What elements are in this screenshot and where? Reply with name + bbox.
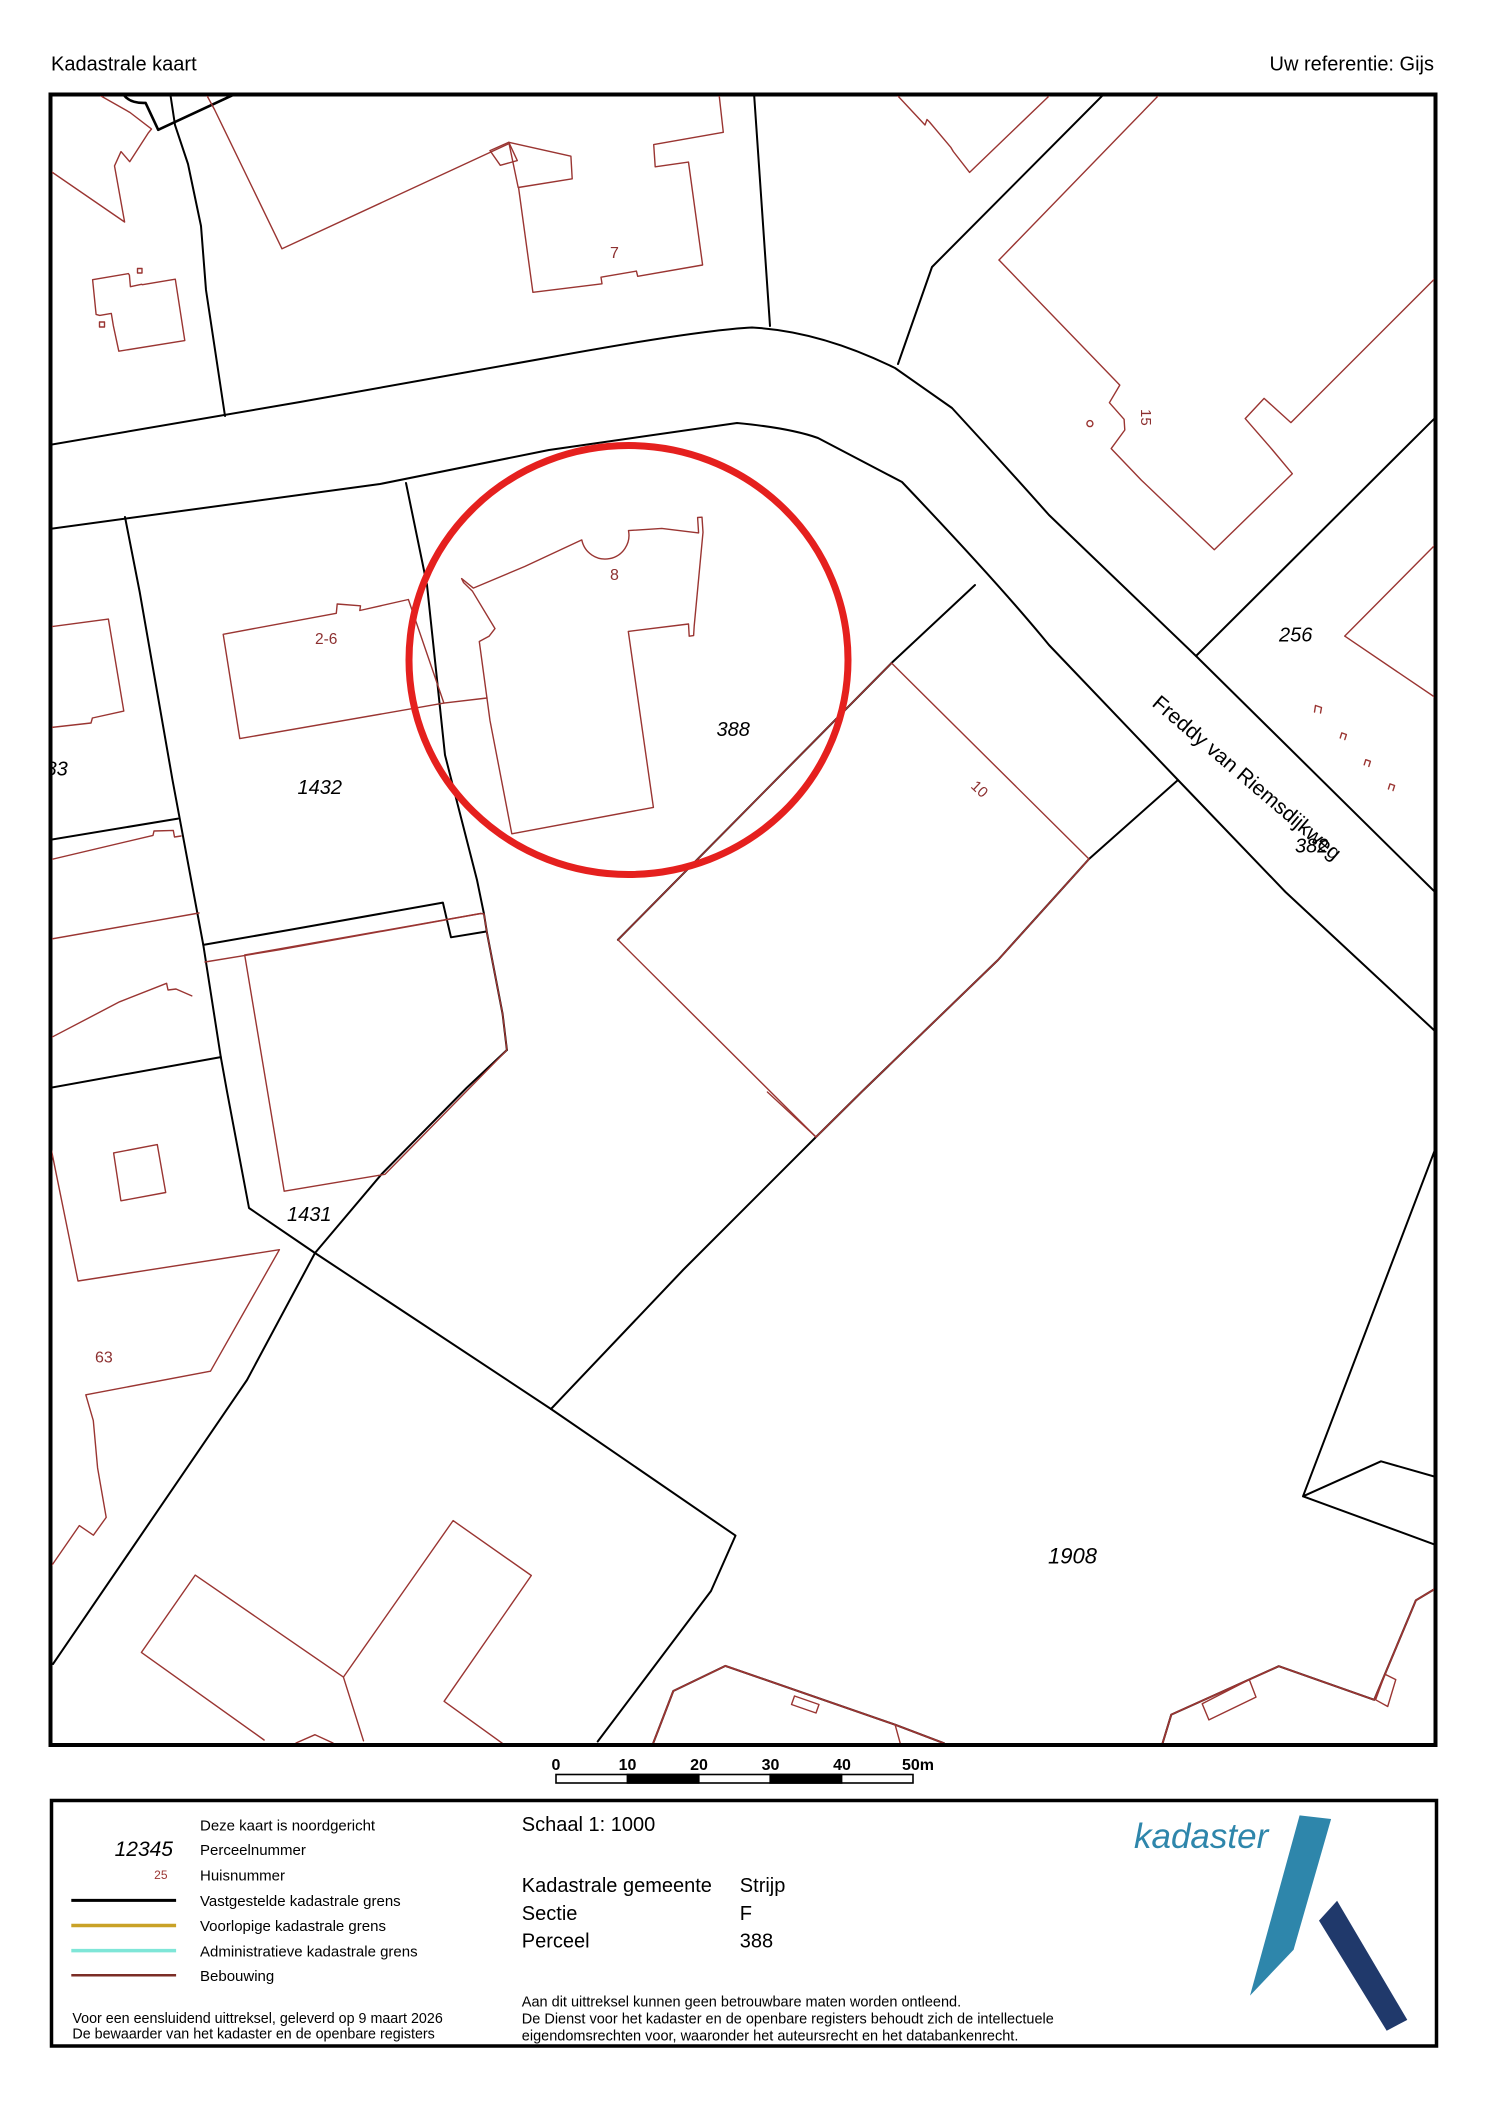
svg-text:Aan dit uittreksel kunnen geen: Aan dit uittreksel kunnen geen betrouwba… [522,1995,961,2011]
svg-text:kadaster: kadaster [1134,1817,1270,1856]
svg-text:Kadastrale gemeente: Kadastrale gemeente [522,1875,712,1897]
svg-text:12345: 12345 [115,1838,174,1861]
svg-text:Uw referentie: Gijs: Uw referentie: Gijs [1270,54,1435,76]
svg-text:8: 8 [610,567,619,584]
svg-text:Sectie: Sectie [522,1903,578,1925]
svg-text:Voor een eensluidend uittrekse: Voor een eensluidend uittreksel, gelever… [72,2011,442,2027]
svg-text:De bewaarder van het kadaster: De bewaarder van het kadaster en de open… [72,2027,434,2043]
svg-text:10: 10 [619,1757,637,1774]
svg-text:63: 63 [95,1350,113,1367]
svg-text:256: 256 [1278,625,1313,647]
svg-text:30: 30 [762,1757,780,1774]
svg-text:20: 20 [690,1757,708,1774]
svg-text:1908: 1908 [1048,1544,1098,1569]
svg-text:Bebouwing: Bebouwing [200,1968,274,1985]
svg-text:F: F [740,1903,752,1925]
svg-text:Vastgestelde kadastrale grens: Vastgestelde kadastrale grens [200,1893,401,1910]
svg-text:25: 25 [154,1868,168,1882]
svg-text:50m: 50m [902,1757,934,1774]
svg-text:Perceelnummer: Perceelnummer [200,1842,306,1859]
svg-text:eigendomsrechten voor, waarond: eigendomsrechten voor, waaronder het aut… [522,2029,1019,2045]
svg-text:De Dienst voor het kadaster en: De Dienst voor het kadaster en de openba… [522,2012,1054,2028]
svg-text:Huisnummer: Huisnummer [200,1868,285,1885]
svg-text:Perceel: Perceel [522,1931,590,1953]
svg-text:7: 7 [610,245,619,262]
svg-text:2-6: 2-6 [315,631,337,648]
svg-text:15: 15 [1137,409,1154,426]
svg-text:Kadastrale kaart: Kadastrale kaart [51,54,197,76]
svg-text:1432: 1432 [298,777,343,799]
svg-text:40: 40 [833,1757,851,1774]
svg-text:1431: 1431 [287,1204,332,1226]
svg-text:Schaal 1: 1000: Schaal 1: 1000 [522,1814,655,1836]
svg-text:388: 388 [717,719,750,741]
svg-text:Administratieve kadastrale gre: Administratieve kadastrale grens [200,1944,418,1961]
svg-text:388: 388 [740,1931,773,1953]
svg-text:0: 0 [552,1757,561,1774]
svg-text:Strijp: Strijp [740,1875,786,1897]
svg-text:Deze kaart is noordgericht: Deze kaart is noordgericht [200,1818,376,1835]
svg-text:Voorlopige kadastrale grens: Voorlopige kadastrale grens [200,1918,386,1935]
